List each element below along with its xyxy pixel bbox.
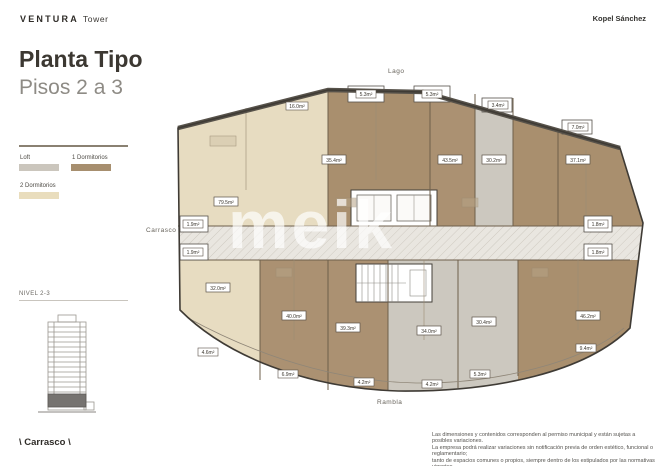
brand-logo: VENTURATower: [20, 14, 109, 24]
legend-swatch-one-dorm: [71, 164, 111, 171]
sidebar-divider: [19, 145, 128, 147]
area-label: 43.5m²: [442, 158, 458, 164]
area-label: 46.2m²: [580, 314, 596, 320]
area-label: 6.9m²: [282, 372, 295, 378]
area-label: 30.4m²: [476, 320, 492, 326]
area-label: 5.3m²: [360, 92, 373, 98]
area-label: 4.2m²: [426, 382, 439, 388]
disclaimer-line: Las dimensiones y contenidos corresponde…: [432, 432, 656, 445]
area-label: 37.1m²: [570, 158, 586, 164]
page-subtitle: Pisos 2 a 3: [19, 76, 123, 100]
brand-name: VENTURA: [20, 14, 79, 24]
disclaimer-line: La empresa podrá realizar variaciones si…: [432, 445, 656, 458]
level-label: NIVEL 2-3: [19, 291, 50, 297]
disclaimer-line: tanto de espacios comunes o propios, sie…: [432, 458, 656, 466]
area-label: 16.0m²: [289, 104, 305, 110]
floor-plan: 79.5m² 32.0m² 35.4m² 43.5m² 30.2m² 37.1m…: [166, 80, 646, 406]
area-label: 40.0m²: [286, 314, 302, 320]
brand-suffix: Tower: [83, 14, 109, 24]
disclaimer: Las dimensiones y contenidos corresponde…: [432, 432, 656, 466]
area-label: 79.5m²: [218, 200, 234, 206]
brochure-page: VENTURATower Kopel Sánchez Planta Tipo P…: [0, 0, 660, 466]
page-title: Planta Tipo: [19, 46, 143, 73]
orientation-top: Lago: [388, 68, 404, 75]
legend-label-one-dorm: 1 Dormitorios: [72, 155, 108, 161]
area-label: 5.3m²: [426, 92, 439, 98]
legend-swatch-loft: [19, 164, 59, 171]
street-label: \ Carrasco \: [19, 437, 71, 448]
area-label: 39.3m²: [340, 326, 356, 332]
area-label: 30.2m²: [486, 158, 502, 164]
building-elevation: [34, 306, 98, 422]
area-label: 1.8m²: [592, 250, 605, 256]
core-elevators: [351, 190, 437, 226]
legend-label-two-dorm: 2 Dormitorios: [20, 183, 56, 189]
elevation-highlight-floors: [48, 394, 86, 407]
legend-label-loft: Loft: [20, 155, 30, 161]
area-label: 34.0m²: [421, 329, 437, 335]
area-label: 1.8m²: [592, 222, 605, 228]
studio-name: Kopel Sánchez: [593, 14, 646, 23]
area-label: 3.4m²: [492, 103, 505, 109]
area-label: 1.9m²: [187, 250, 200, 256]
area-label: 9.4m²: [580, 346, 593, 352]
core-stairs: [356, 264, 432, 302]
area-label: 7.0m²: [572, 125, 585, 131]
level-divider: [19, 300, 128, 301]
area-label: 32.0m²: [210, 286, 226, 292]
area-label: 4.2m²: [358, 380, 371, 386]
area-label: 1.9m²: [187, 222, 200, 228]
area-label: 5.3m²: [474, 372, 487, 378]
area-label: 35.4m²: [326, 158, 342, 164]
legend-swatch-two-dorm: [19, 192, 59, 199]
area-label: 4.6m²: [202, 350, 215, 356]
